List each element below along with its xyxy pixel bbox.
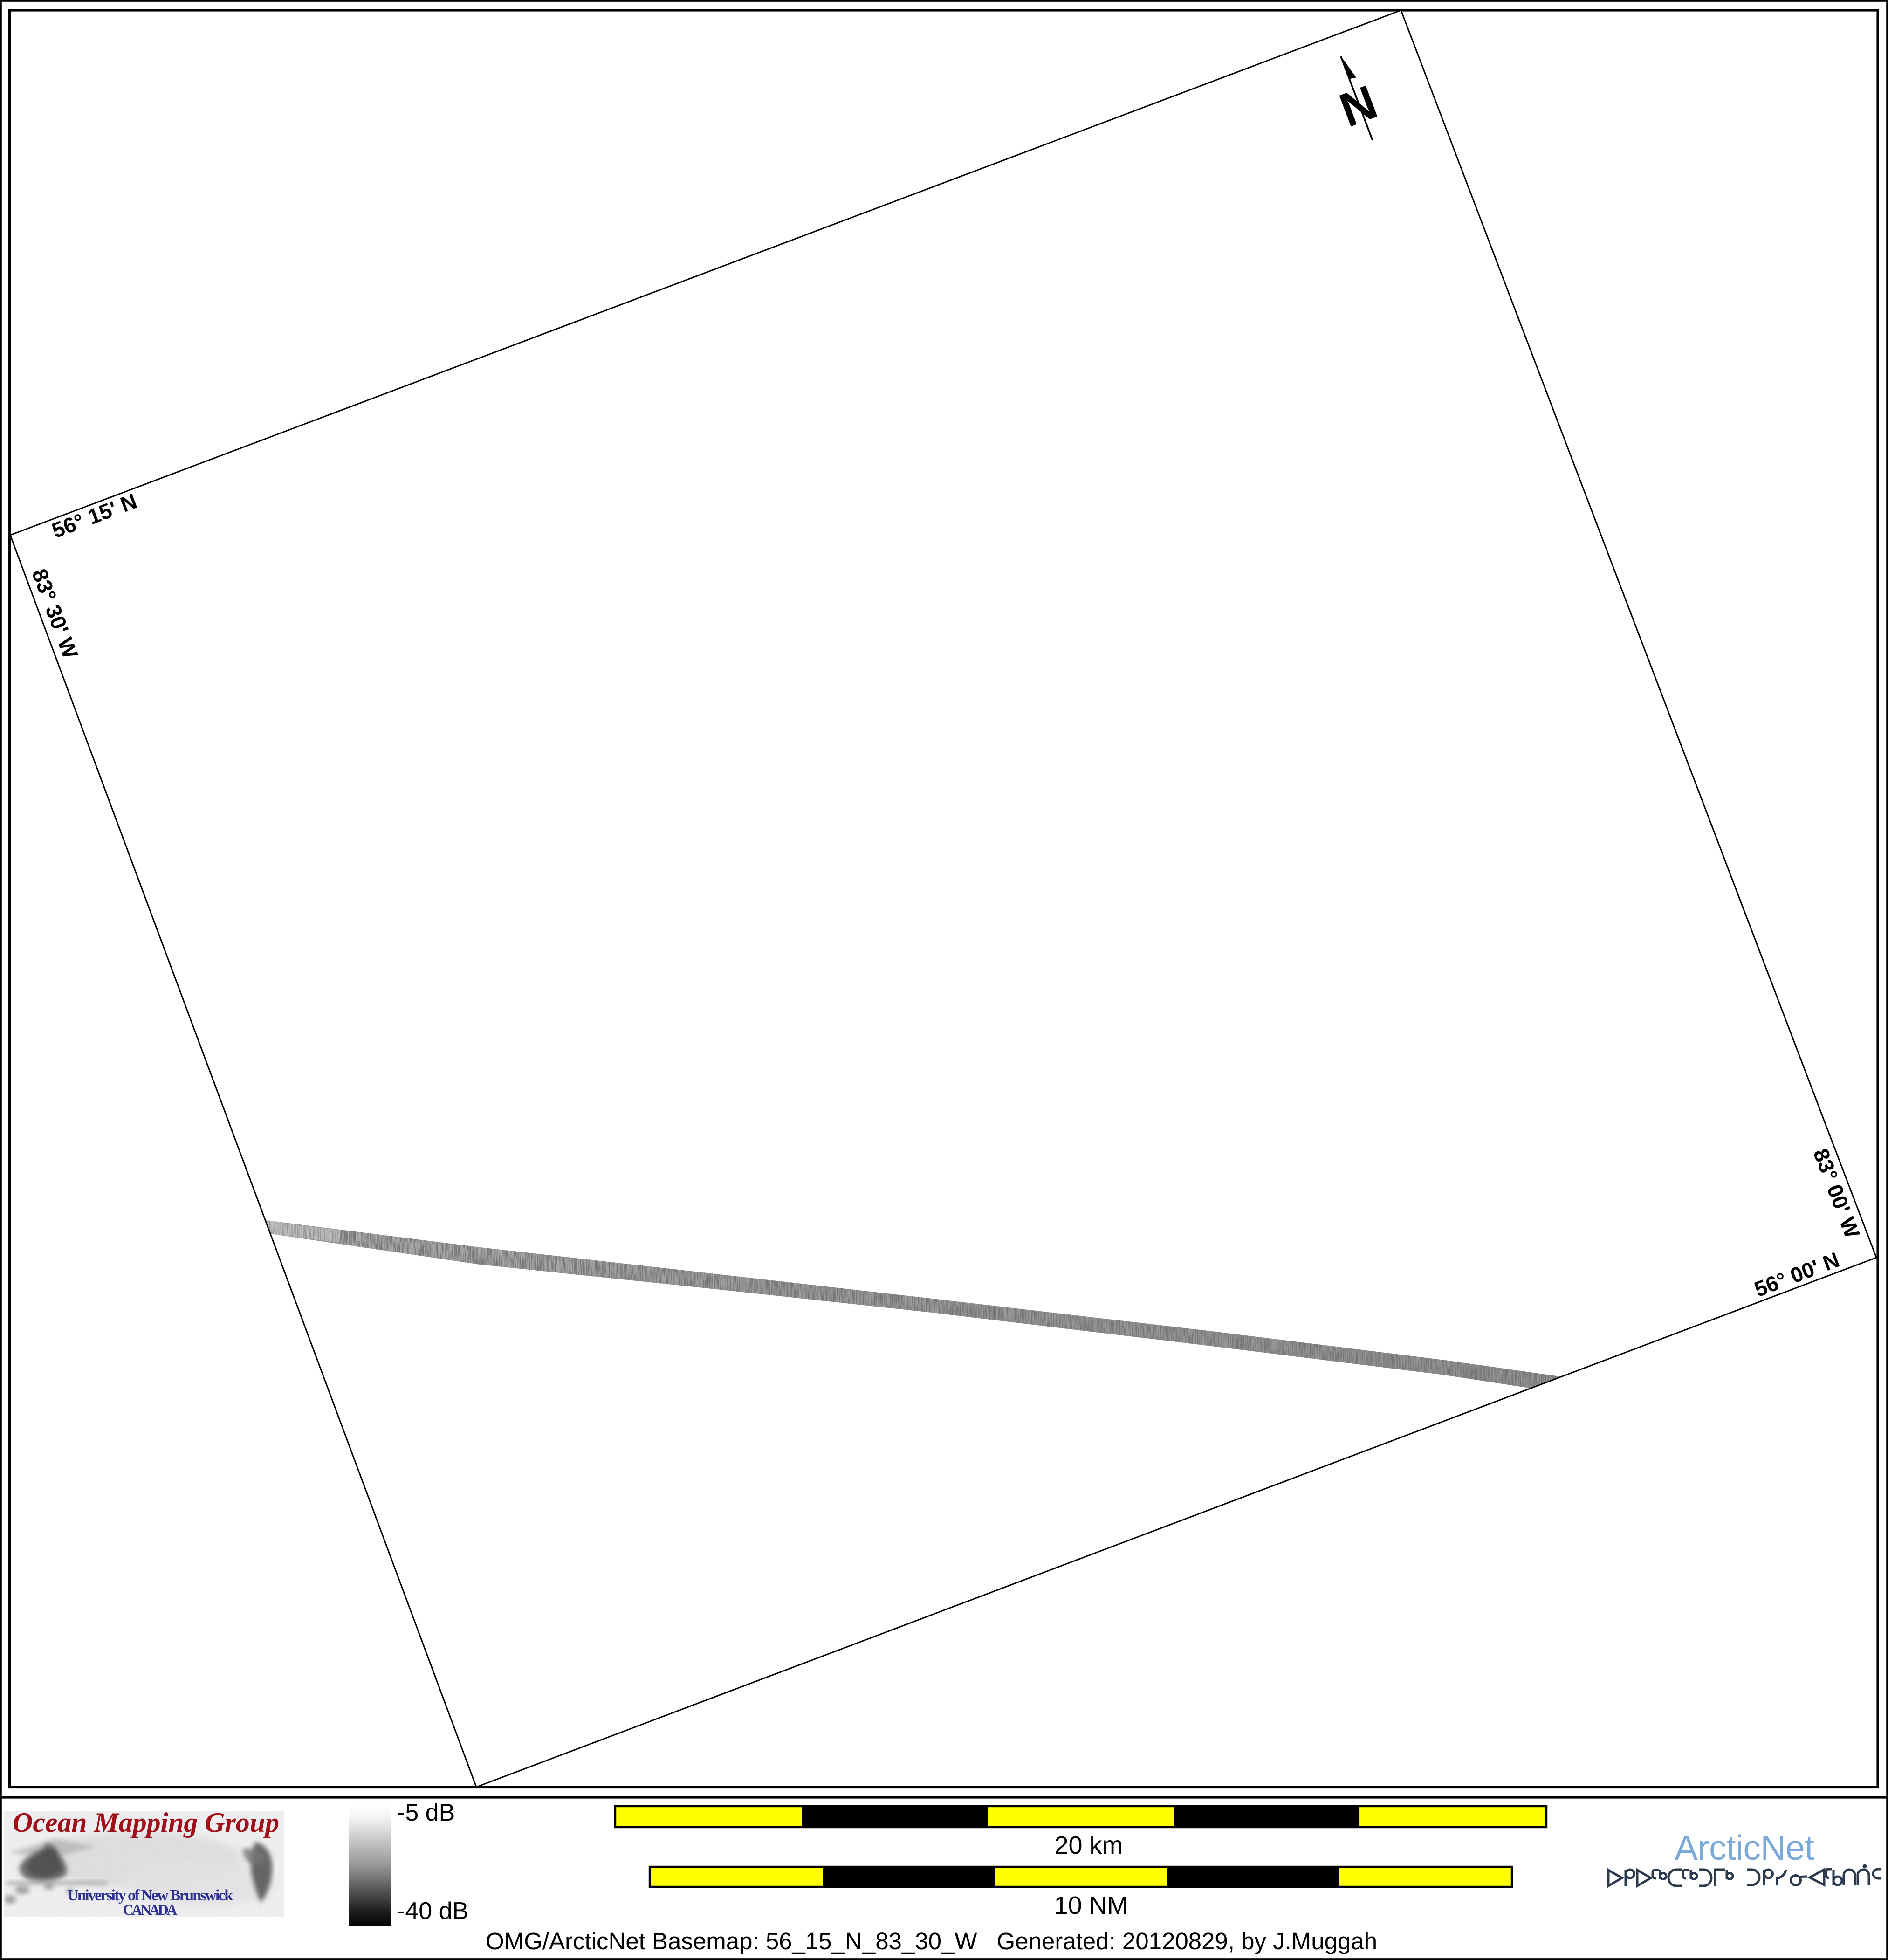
svg-text:ArcticNet: ArcticNet	[1675, 1828, 1814, 1867]
svg-text:CANADA: CANADA	[123, 1901, 178, 1918]
svg-text:10 NM: 10 NM	[1054, 1891, 1128, 1919]
svg-text:Ocean Mapping Group: Ocean Mapping Group	[13, 1807, 279, 1838]
svg-text:-5 dB: -5 dB	[397, 1799, 455, 1826]
svg-text:-40 dB: -40 dB	[397, 1898, 468, 1925]
svg-text:OMG/ArcticNet Basemap: 56_15_N: OMG/ArcticNet Basemap: 56_15_N_83_30_WGe…	[486, 1928, 1377, 1954]
svg-text:20 km: 20 km	[1054, 1831, 1123, 1859]
